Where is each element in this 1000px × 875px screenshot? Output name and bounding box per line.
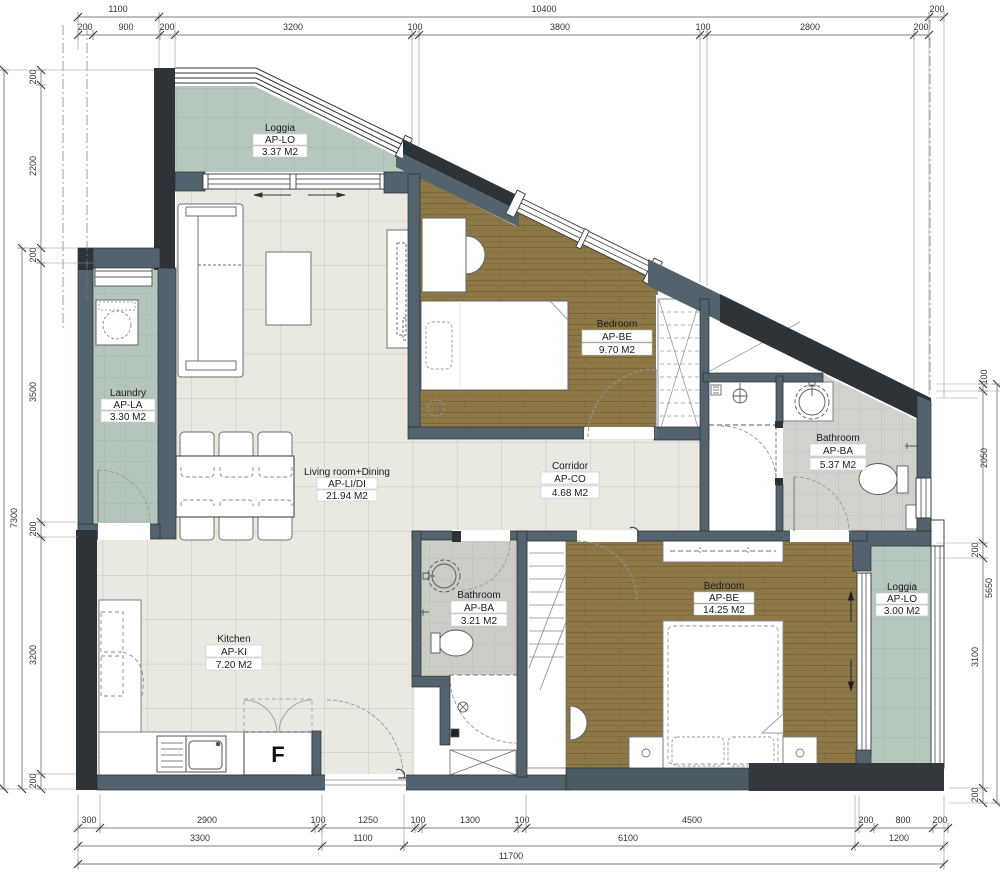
svg-text:200: 200 — [858, 815, 873, 825]
svg-text:AP-LO: AP-LO — [887, 594, 917, 605]
svg-text:AP-BE: AP-BE — [709, 593, 739, 604]
svg-text:AP-LI/DI: AP-LI/DI — [328, 479, 366, 490]
svg-text:3.00 M2: 3.00 M2 — [884, 606, 921, 617]
svg-text:200: 200 — [929, 4, 944, 14]
svg-text:200: 200 — [913, 22, 928, 32]
svg-text:200: 200 — [932, 815, 947, 825]
svg-text:200: 200 — [28, 69, 38, 84]
svg-text:100: 100 — [410, 815, 425, 825]
svg-text:2800: 2800 — [800, 22, 820, 32]
svg-text:AP-CO: AP-CO — [554, 474, 586, 485]
svg-text:3200: 3200 — [283, 22, 303, 32]
svg-text:200: 200 — [28, 773, 38, 788]
svg-text:6100: 6100 — [618, 833, 638, 843]
svg-text:100: 100 — [514, 815, 529, 825]
svg-text:300: 300 — [81, 815, 96, 825]
svg-text:100: 100 — [407, 22, 422, 32]
svg-text:Loggia: Loggia — [887, 582, 917, 593]
svg-text:11700: 11700 — [499, 851, 523, 861]
svg-text:Corridor: Corridor — [552, 461, 589, 472]
svg-text:3200: 3200 — [28, 645, 38, 665]
svg-text:3300: 3300 — [190, 833, 210, 843]
svg-text:100: 100 — [310, 815, 325, 825]
svg-text:1100: 1100 — [108, 4, 127, 14]
svg-text:F: F — [271, 742, 284, 767]
svg-text:200: 200 — [970, 787, 980, 802]
svg-text:Bedroom: Bedroom — [704, 581, 745, 592]
svg-text:Living room+Dining: Living room+Dining — [304, 467, 390, 478]
svg-text:7300: 7300 — [9, 508, 19, 528]
svg-text:Bathroom: Bathroom — [816, 433, 859, 444]
svg-text:100: 100 — [979, 369, 989, 384]
svg-text:1100: 1100 — [353, 833, 372, 843]
svg-text:1300: 1300 — [460, 815, 480, 825]
svg-text:1250: 1250 — [358, 815, 378, 825]
svg-text:200: 200 — [77, 22, 92, 32]
svg-text:3100: 3100 — [970, 647, 980, 667]
svg-text:5.37 M2: 5.37 M2 — [820, 460, 857, 471]
svg-text:9700: 9700 — [0, 420, 2, 440]
svg-text:3800: 3800 — [550, 22, 570, 32]
svg-text:200: 200 — [28, 247, 38, 262]
svg-text:3500: 3500 — [28, 382, 38, 402]
svg-text:3.21 M2: 3.21 M2 — [461, 616, 498, 627]
svg-text:AP-BE: AP-BE — [602, 332, 632, 343]
svg-text:4.68 M2: 4.68 M2 — [552, 488, 589, 499]
svg-text:4500: 4500 — [682, 815, 702, 825]
svg-text:100: 100 — [695, 22, 710, 32]
svg-text:Loggia: Loggia — [265, 123, 295, 134]
svg-text:10400: 10400 — [531, 4, 556, 14]
svg-text:Bathroom: Bathroom — [457, 590, 500, 601]
svg-text:900: 900 — [118, 22, 133, 32]
svg-text:9.70 M2: 9.70 M2 — [599, 345, 636, 356]
svg-text:AP-BA: AP-BA — [823, 446, 853, 457]
svg-text:200: 200 — [970, 542, 980, 557]
svg-text:7.20 M2: 7.20 M2 — [216, 660, 253, 671]
svg-text:Bedroom: Bedroom — [597, 319, 638, 330]
svg-text:3.37 M2: 3.37 M2 — [262, 147, 299, 158]
svg-text:AP-LO: AP-LO — [265, 135, 295, 146]
svg-text:200: 200 — [159, 22, 174, 32]
svg-text:14.25 M2: 14.25 M2 — [703, 605, 745, 616]
svg-text:3.30 M2: 3.30 M2 — [110, 412, 147, 423]
svg-text:2200: 2200 — [28, 156, 38, 176]
svg-text:200: 200 — [28, 521, 38, 536]
svg-text:Laundry: Laundry — [110, 388, 146, 399]
svg-text:AP-LA: AP-LA — [114, 400, 143, 411]
svg-text:1200: 1200 — [889, 833, 909, 843]
svg-text:2050: 2050 — [979, 448, 989, 468]
svg-text:Kitchen: Kitchen — [217, 634, 250, 645]
svg-text:2900: 2900 — [197, 815, 217, 825]
svg-text:AP-BA: AP-BA — [464, 603, 494, 614]
svg-text:5650: 5650 — [984, 578, 994, 598]
svg-text:800: 800 — [895, 815, 910, 825]
svg-text:AP-KI: AP-KI — [221, 647, 247, 658]
svg-text:21.94 M2: 21.94 M2 — [326, 491, 368, 502]
